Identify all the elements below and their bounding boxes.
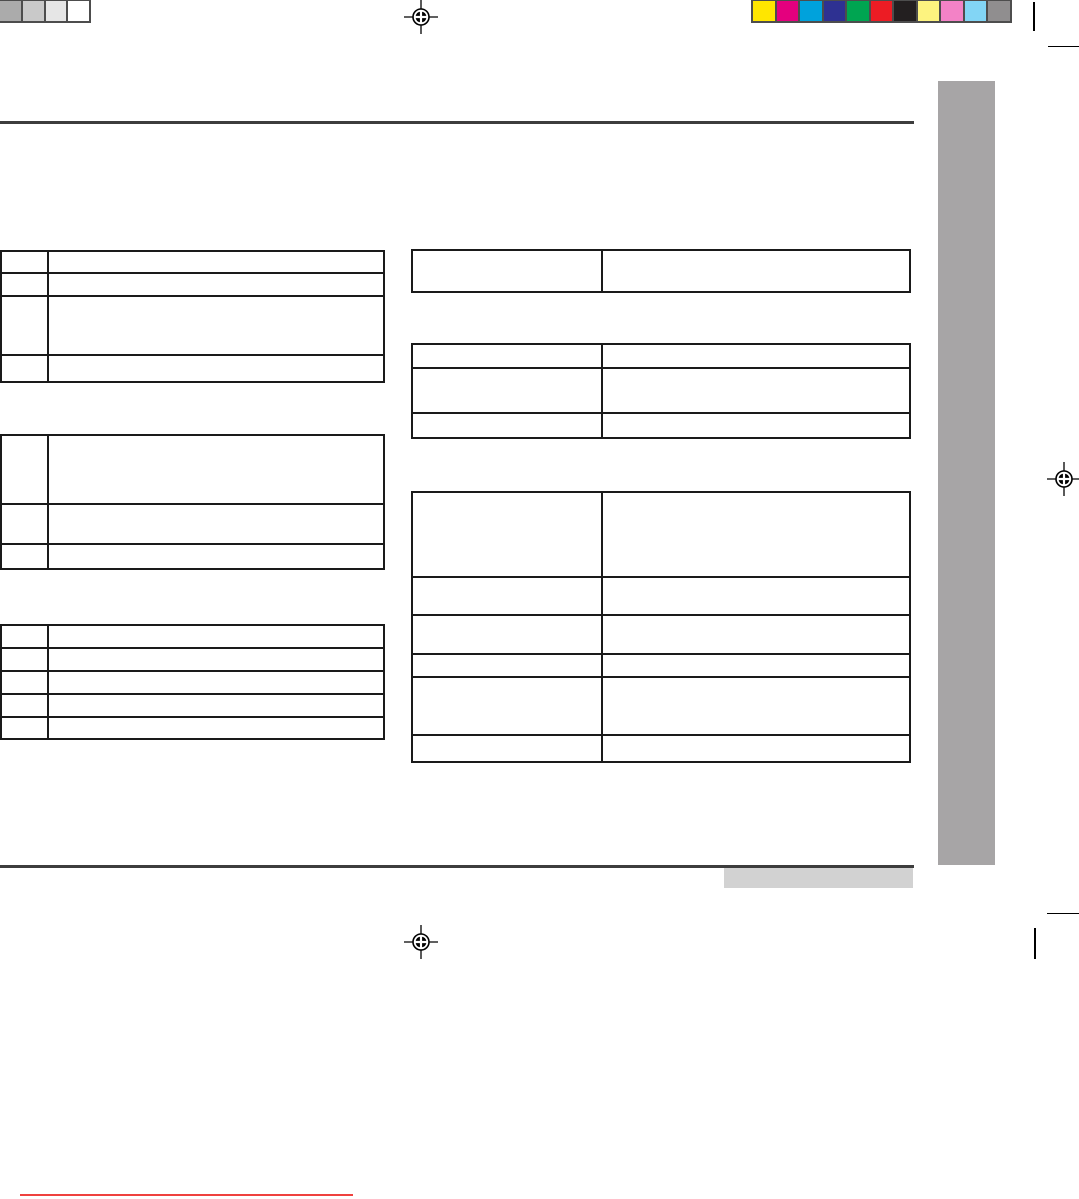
table-cell (1, 355, 48, 382)
table-cell (48, 273, 384, 296)
color-swatch (939, 0, 965, 23)
color-swatch (892, 0, 918, 23)
color-calibration-bar (751, 0, 1012, 23)
table-cell (48, 671, 384, 694)
color-swatch (822, 0, 848, 23)
footer-red-line (20, 1194, 353, 1196)
table-cell (602, 577, 910, 615)
table-cell (1, 671, 48, 694)
crop-mark (1048, 46, 1079, 48)
crop-mark (1047, 913, 1079, 915)
table-cell (412, 250, 602, 292)
crop-mark (1034, 928, 1036, 959)
table-cell (412, 413, 602, 438)
color-swatch (916, 0, 942, 23)
spec-table-left-2 (0, 434, 385, 570)
table-cell (412, 677, 602, 735)
table-cell (602, 344, 910, 368)
table-cell (1, 544, 48, 569)
color-swatch (963, 0, 989, 23)
header-rule (0, 121, 914, 125)
registration-mark-icon (1047, 462, 1079, 496)
table-cell (602, 735, 910, 762)
table-cell (1, 273, 48, 296)
grayscale-swatch (66, 0, 91, 23)
crop-mark (1033, 2, 1035, 31)
table-cell (412, 368, 602, 413)
footer-highlight-box (724, 868, 913, 888)
color-swatch (751, 0, 777, 23)
table-cell (48, 355, 384, 382)
table-cell (48, 544, 384, 569)
grayscale-calibration-bar (0, 0, 91, 23)
color-swatch (798, 0, 824, 23)
table-cell (1, 648, 48, 671)
registration-mark-icon (404, 0, 438, 34)
table-cell (48, 717, 384, 739)
table-cell (1, 504, 48, 544)
spec-table-right-3 (411, 491, 911, 763)
table-cell (1, 251, 48, 273)
color-swatch (986, 0, 1012, 23)
table-cell (602, 368, 910, 413)
table-cell (412, 492, 602, 577)
table-cell (412, 577, 602, 615)
spec-table-right-1 (411, 249, 911, 293)
table-cell (48, 694, 384, 717)
table-cell (412, 735, 602, 762)
table-cell (602, 413, 910, 438)
chapter-side-tab (938, 81, 995, 865)
table-cell (1, 717, 48, 739)
table-cell (48, 435, 384, 504)
table-cell (48, 296, 384, 355)
color-swatch (869, 0, 895, 23)
spec-table-right-2 (411, 343, 911, 439)
color-swatch (775, 0, 801, 23)
grayscale-swatch (44, 0, 69, 23)
spec-table-left-1 (0, 250, 385, 383)
table-cell (602, 250, 910, 292)
table-cell (1, 625, 48, 648)
table-cell (602, 492, 910, 577)
color-swatch (845, 0, 871, 23)
page (0, 0, 1079, 1199)
table-cell (412, 344, 602, 368)
spec-table-left-3 (0, 624, 385, 740)
table-cell (48, 504, 384, 544)
table-cell (602, 615, 910, 654)
grayscale-swatch (0, 0, 23, 23)
grayscale-swatch (21, 0, 46, 23)
table-cell (1, 694, 48, 717)
table-cell (48, 648, 384, 671)
table-cell (48, 251, 384, 273)
table-cell (48, 625, 384, 648)
table-cell (412, 615, 602, 654)
table-cell (602, 677, 910, 735)
table-cell (412, 654, 602, 677)
table-cell (602, 654, 910, 677)
table-cell (1, 296, 48, 355)
registration-mark-icon (404, 925, 438, 959)
table-cell (1, 435, 48, 504)
